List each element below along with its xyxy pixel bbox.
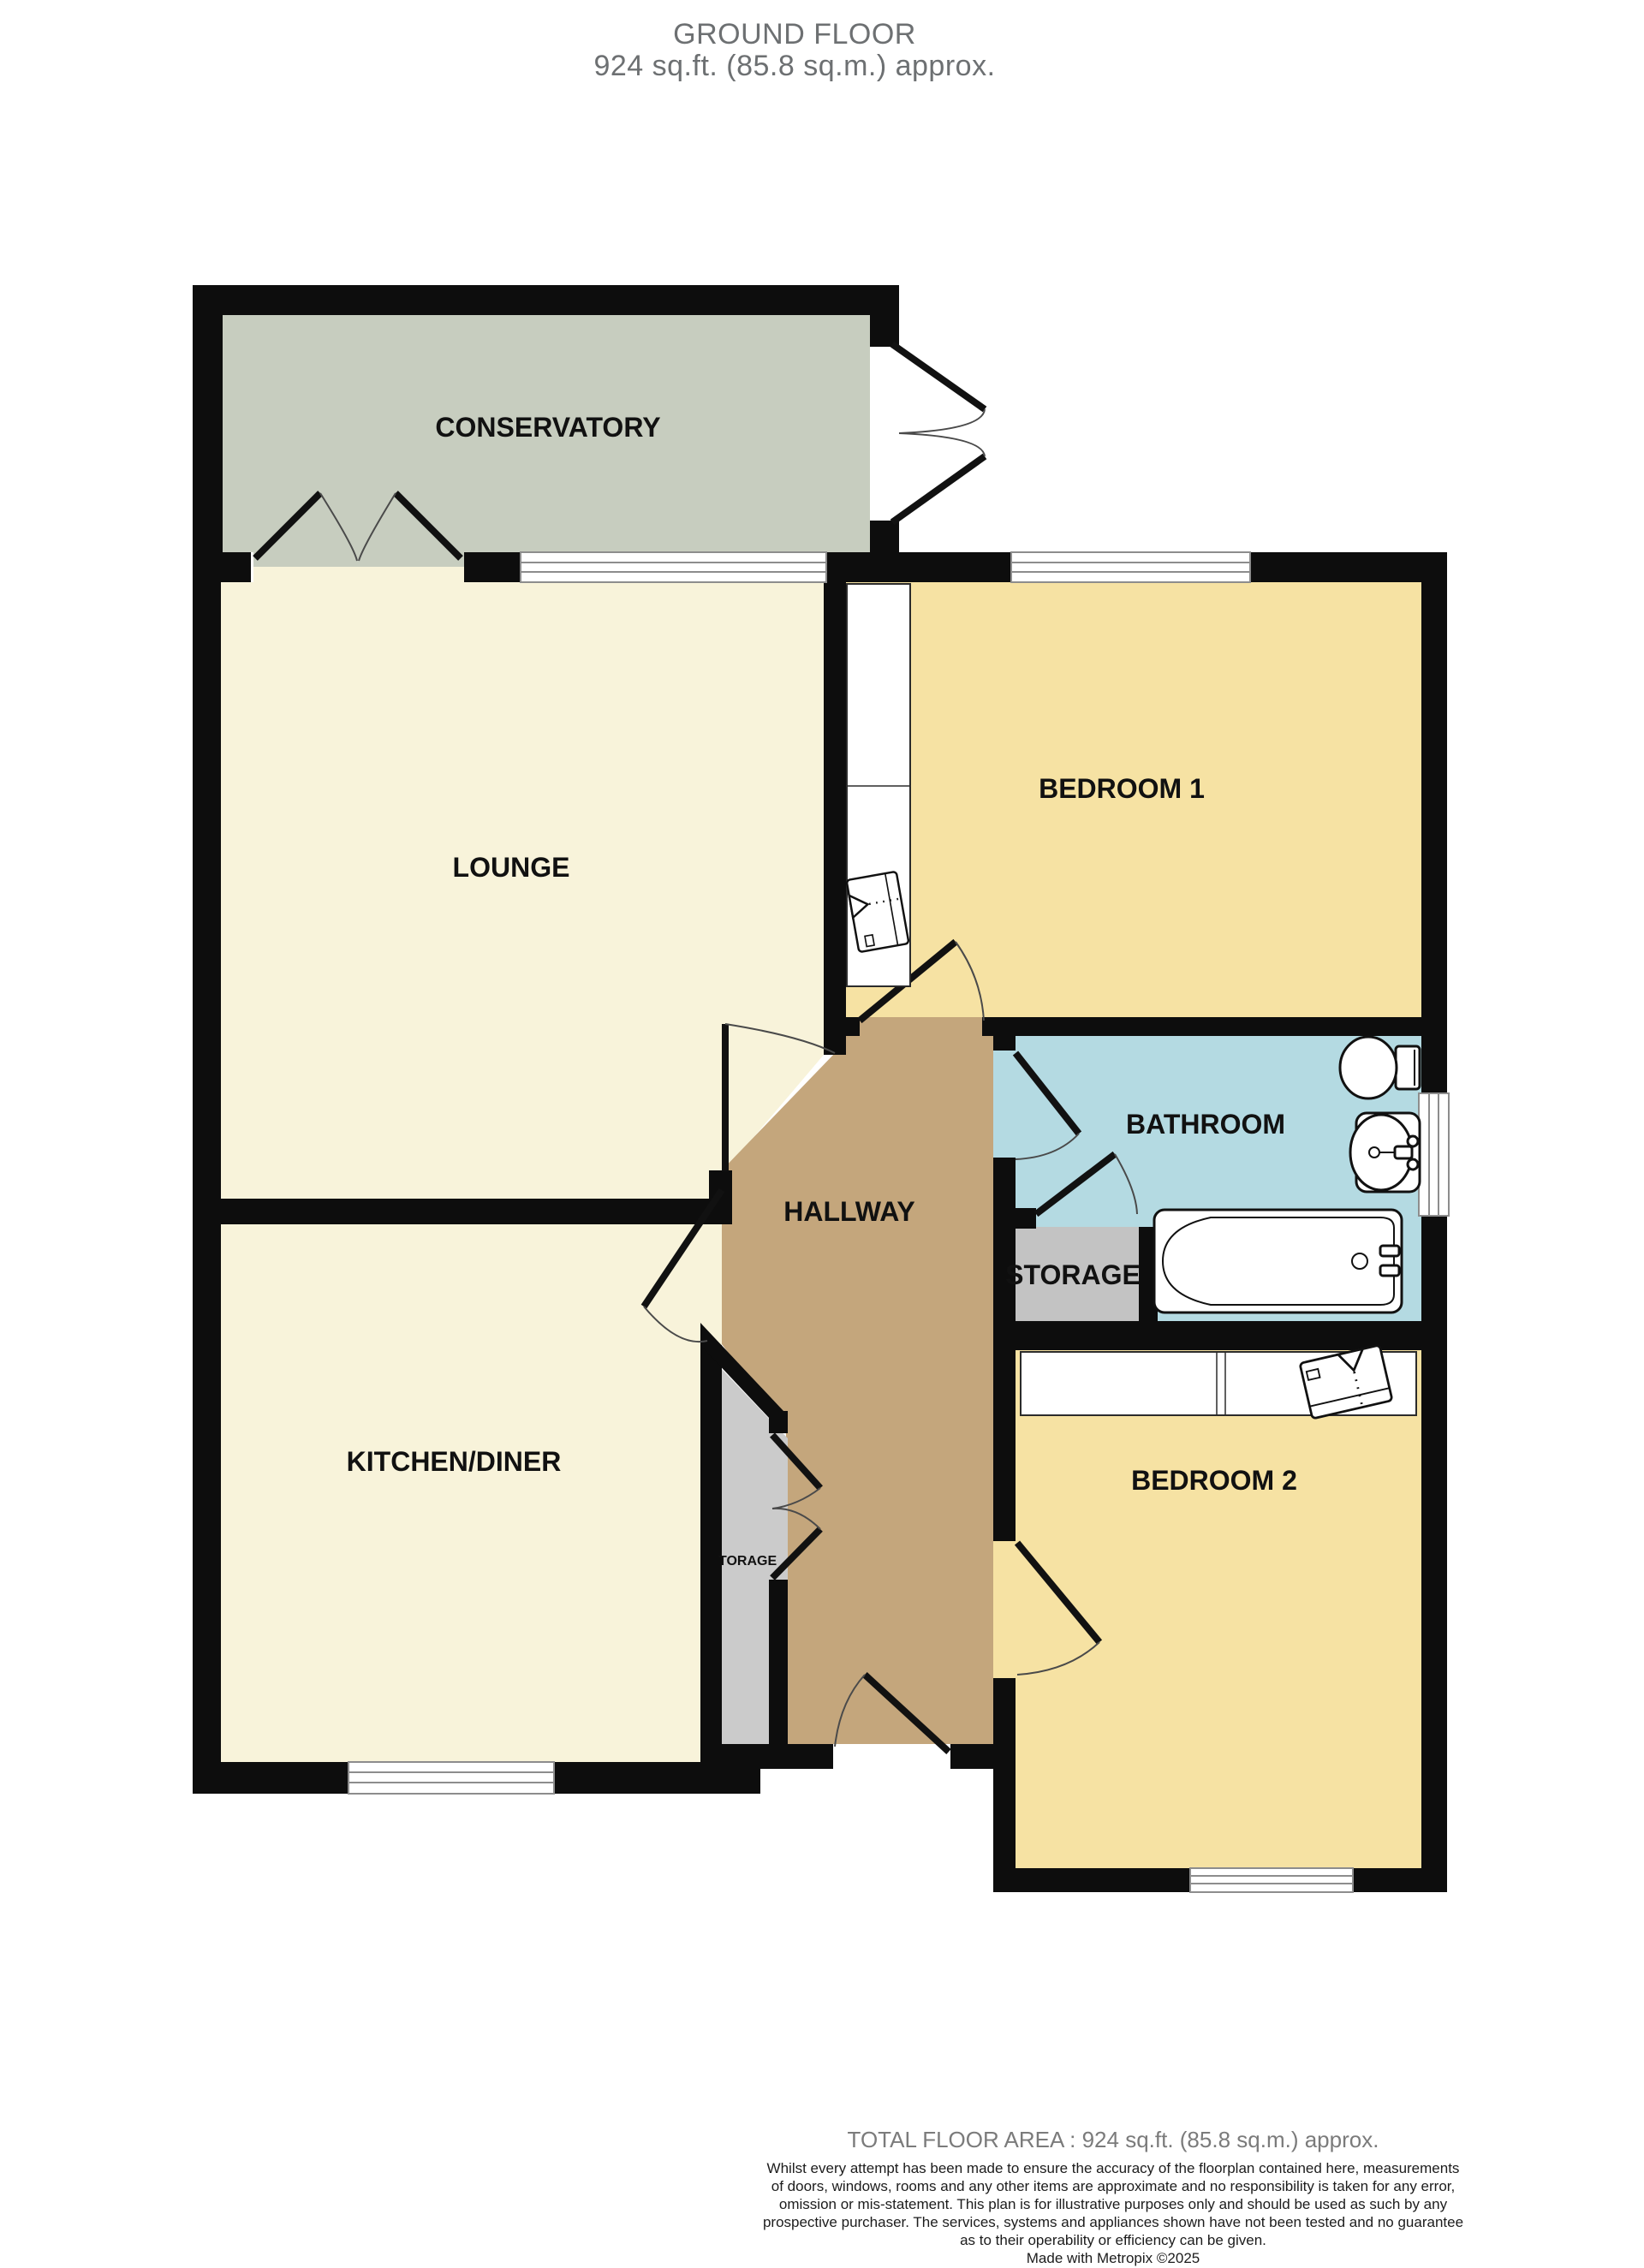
wall-segment	[824, 1017, 860, 1036]
sink-tap-handle	[1408, 1136, 1418, 1146]
sink-tap	[1395, 1146, 1412, 1158]
label-conservatory: CONSERVATORY	[435, 412, 660, 443]
wall-segment	[193, 582, 221, 1794]
sink-icon	[1350, 1113, 1420, 1192]
wall-segment	[993, 1036, 1016, 1051]
disclaimer-line: omission or mis-statement. This plan is …	[779, 2196, 1447, 2212]
window-glass	[1419, 1093, 1449, 1216]
disclaimer-line: of doors, windows, rooms and any other i…	[771, 2178, 1455, 2194]
wall-segment	[193, 1199, 732, 1224]
floorplan: CONSERVATORY LOUNGE BEDROOM 1 BATHROOM S…	[0, 0, 1644, 2268]
toilet-bowl	[1340, 1037, 1397, 1098]
label-bedroom1: BEDROOM 1	[1039, 773, 1205, 804]
room-fills	[221, 315, 1421, 1868]
window-glass	[1011, 552, 1250, 582]
toilet-icon	[1340, 1037, 1420, 1098]
wall-segment	[826, 552, 1011, 582]
label-lounge: LOUNGE	[453, 852, 570, 883]
wall-segment	[993, 1678, 1016, 1892]
window-kitchen	[348, 1762, 554, 1794]
window-glass	[521, 552, 826, 582]
door-leaf	[892, 344, 985, 409]
window-bedroom1	[1011, 552, 1250, 582]
window-bedroom2	[1190, 1868, 1353, 1892]
label-bathroom: BATHROOM	[1126, 1109, 1285, 1140]
footer: TOTAL FLOOR AREA : 924 sq.ft. (85.8 sq.m…	[651, 2127, 1575, 2267]
bathtub-tap	[1380, 1265, 1399, 1276]
wall-segment	[769, 1580, 788, 1744]
disclaimer: Whilst every attempt has been made to en…	[651, 2159, 1575, 2249]
wall-segment	[824, 582, 846, 1055]
bathtub-tap	[1380, 1246, 1399, 1256]
metropix-credit: Made with Metropix ©2025	[651, 2249, 1575, 2267]
disclaimer-line: as to their operability or efficiency ca…	[960, 2232, 1266, 2248]
label-storage: STORAGE	[1005, 1259, 1141, 1290]
wall-segment	[950, 1744, 993, 1769]
wall-segment	[769, 1411, 788, 1433]
label-small-storage: TORAGE	[718, 1554, 777, 1569]
door-conservatory-french	[892, 344, 985, 522]
wall-segment	[982, 1017, 1447, 1036]
door-arc	[899, 433, 985, 456]
disclaimer-line: Whilst every attempt has been made to en…	[767, 2160, 1460, 2176]
room-lounge	[221, 582, 824, 1199]
window-bathroom	[1419, 1093, 1449, 1216]
plan-title: GROUND FLOOR 924 sq.ft. (85.8 sq.m.) app…	[0, 19, 1589, 82]
label-bedroom2: BEDROOM 2	[1131, 1465, 1297, 1496]
lounge-door-gap	[253, 567, 464, 582]
total-floor-area: TOTAL FLOOR AREA : 924 sq.ft. (85.8 sq.m…	[651, 2127, 1575, 2153]
window-glass	[1190, 1868, 1353, 1892]
wall-segment	[193, 552, 251, 582]
wall-segment	[193, 285, 899, 315]
wall-segment	[1016, 1208, 1036, 1229]
wall-segment	[1421, 552, 1447, 1892]
wall-segment	[870, 521, 899, 552]
wardrobe-bedroom2	[1021, 1345, 1416, 1419]
label-kitchen: KITCHEN/DINER	[347, 1446, 562, 1477]
sink-tap-handle	[1408, 1159, 1418, 1170]
plan-title-line2: 924 sq.ft. (85.8 sq.m.) approx.	[0, 51, 1589, 82]
toilet-tank	[1396, 1046, 1420, 1089]
bathtub-outer	[1154, 1210, 1402, 1313]
room-bedroom2	[993, 1350, 1421, 1868]
door-leaf	[892, 456, 985, 522]
window-lounge-conservatory	[521, 552, 826, 582]
window-glass	[348, 1762, 554, 1794]
wall-segment	[1250, 552, 1447, 582]
wall-segment	[464, 552, 521, 582]
wall-segment	[993, 1350, 1016, 1541]
disclaimer-line: prospective purchaser. The services, sys…	[763, 2214, 1463, 2230]
wall-segment	[193, 285, 223, 552]
door-arc	[899, 409, 985, 433]
bathtub-icon	[1154, 1210, 1402, 1313]
wardrobe-bedroom1	[847, 584, 910, 986]
label-hallway: HALLWAY	[783, 1196, 915, 1227]
plan-title-line1: GROUND FLOOR	[0, 19, 1589, 51]
